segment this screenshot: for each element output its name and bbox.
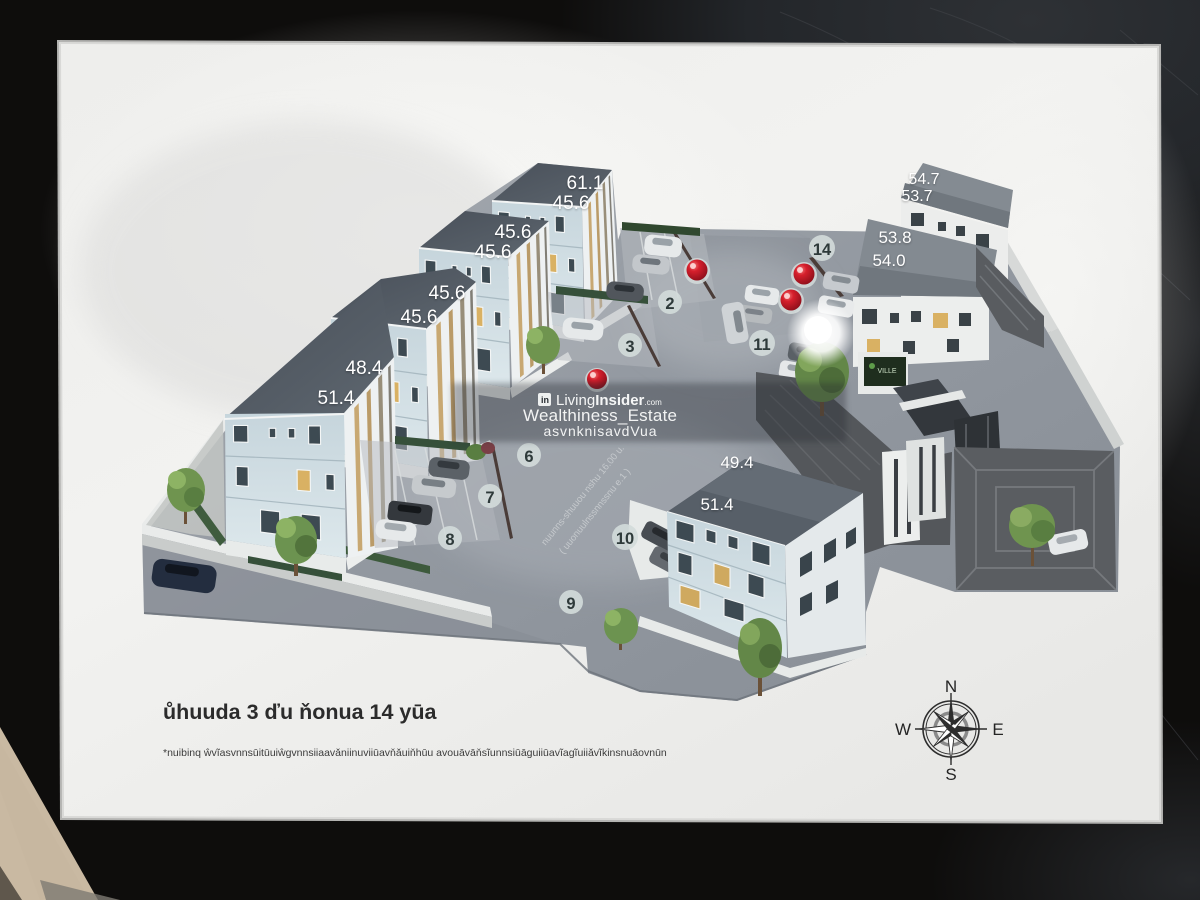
svg-text:2: 2 (665, 295, 674, 313)
svg-text:11: 11 (753, 336, 770, 354)
svg-text:VILLE: VILLE (877, 368, 896, 375)
svg-text:45.6: 45.6 (429, 283, 466, 304)
svg-text:48.4: 48.4 (346, 358, 383, 379)
svg-text:45.6: 45.6 (495, 222, 532, 243)
svg-text:in: in (541, 395, 549, 405)
svg-text:54.7: 54.7 (908, 171, 939, 188)
svg-text:53.7: 53.7 (901, 188, 932, 205)
svg-text:45.6: 45.6 (475, 242, 512, 263)
svg-text:49.4: 49.4 (720, 453, 753, 472)
svg-text:9: 9 (566, 595, 575, 613)
svg-text:10: 10 (616, 530, 634, 548)
svg-text:asvnknisavdVua: asvnknisavdVua (544, 423, 657, 439)
svg-text:6: 6 (524, 448, 533, 466)
svg-text:51.4: 51.4 (700, 495, 733, 514)
svg-text:3: 3 (625, 338, 634, 356)
svg-text:8: 8 (445, 531, 454, 549)
svg-text:45.6: 45.6 (401, 307, 438, 328)
svg-text:E: E (992, 720, 1003, 739)
svg-text:54.0: 54.0 (872, 251, 905, 270)
svg-text:45.6: 45.6 (553, 193, 590, 214)
svg-text:*nuibinq ŵvĩasvnnsūitūuiŵgvnns: *nuibinq ŵvĩasvnnsūitūuiŵgvnnsiiaavǎniin… (163, 747, 667, 759)
svg-text:N: N (945, 677, 957, 696)
svg-text:S: S (945, 765, 956, 784)
svg-text:W: W (895, 720, 911, 739)
svg-text:14: 14 (813, 241, 832, 259)
svg-text:51.4: 51.4 (318, 388, 355, 409)
svg-text:53.8: 53.8 (878, 228, 911, 247)
svg-text:7: 7 (485, 489, 494, 507)
svg-text:ůhuuda 3 ďu ňonua 14 yūa: ůhuuda 3 ďu ňonua 14 yūa (163, 700, 438, 724)
svg-text:61.1: 61.1 (567, 173, 604, 194)
